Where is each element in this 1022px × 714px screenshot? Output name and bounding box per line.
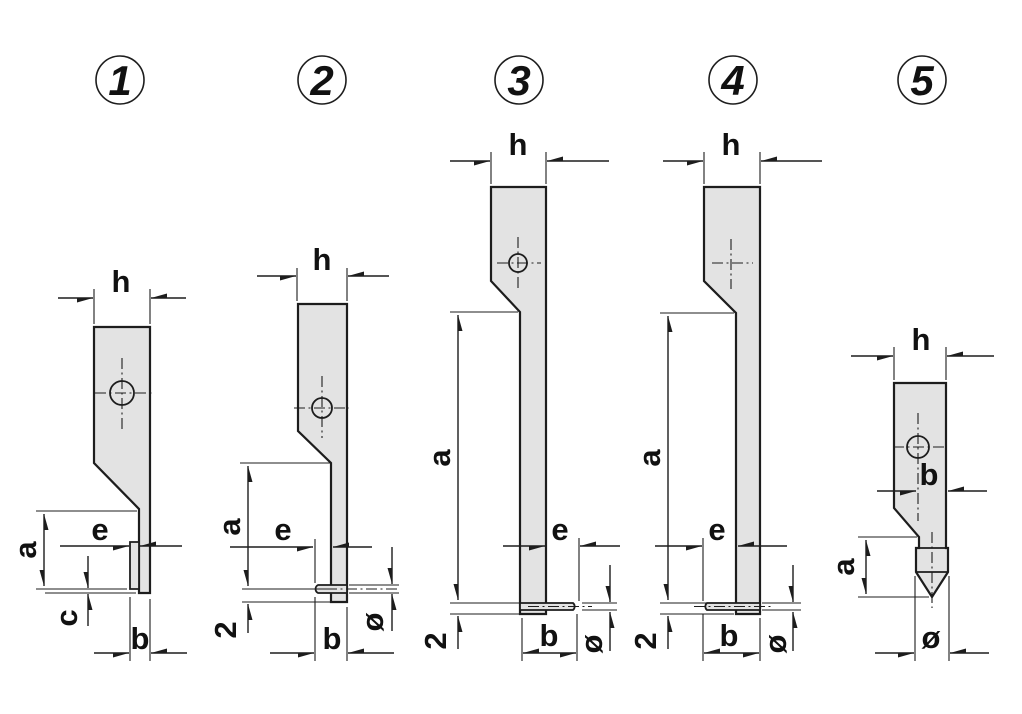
cross-pin [705, 603, 760, 610]
dim-dia-label: ø [355, 612, 390, 631]
dim-e-label: e [708, 512, 725, 547]
dim-h-label: h [509, 127, 528, 162]
figure-3: 3 h e a 2 b ø [418, 56, 620, 661]
blade-body [491, 187, 546, 614]
figure-number: 1 [108, 57, 131, 104]
drawing-canvas: 1 h e a c b 2 [0, 0, 1022, 714]
blade-body [298, 304, 347, 602]
dim-b-label: b [323, 621, 342, 656]
dim-e-label: e [274, 512, 291, 547]
dim-h-label: h [313, 242, 332, 277]
dim-b-label: b [920, 457, 939, 492]
figure-number: 2 [309, 57, 333, 104]
dim-b-label: b [131, 621, 150, 656]
figure-number: 5 [910, 57, 934, 104]
dim-a-label: a [422, 449, 457, 467]
dim-b-label: b [720, 618, 739, 653]
dim-dia-label: ø [758, 634, 793, 653]
dim-a-label: a [8, 541, 43, 559]
dim-e-label: e [551, 512, 568, 547]
dim-h-label: h [722, 127, 741, 162]
dim-h-label: h [112, 264, 131, 299]
dim-dia-label: ø [574, 634, 609, 653]
dim-2-label: 2 [418, 632, 453, 649]
dim-e-label: e [91, 512, 108, 547]
figure-4: 4 h e a 2 b ø [628, 56, 822, 661]
dim-h-label: h [912, 322, 931, 357]
dim-2-label: 2 [628, 632, 663, 649]
knife-profiles-drawing: 1 h e a c b 2 [0, 0, 1022, 714]
figure-1: 1 h e a c b [8, 56, 187, 661]
dim-dia-label: ø [922, 620, 941, 655]
figure-number: 4 [720, 57, 744, 104]
blade-body [704, 187, 760, 614]
dim-a-label: a [212, 518, 247, 536]
dim-2-label: 2 [208, 621, 243, 638]
dim-c-label: c [49, 609, 84, 626]
figure-number: 3 [507, 57, 530, 104]
figure-5: 5 h b a ø [826, 56, 994, 661]
dim-a-label: a [826, 558, 861, 576]
dim-b-label: b [540, 618, 559, 653]
cutting-edge-step [130, 542, 139, 589]
figure-2: 2 h e a 2 b ø [208, 56, 399, 661]
dim-a-label: a [632, 449, 667, 467]
